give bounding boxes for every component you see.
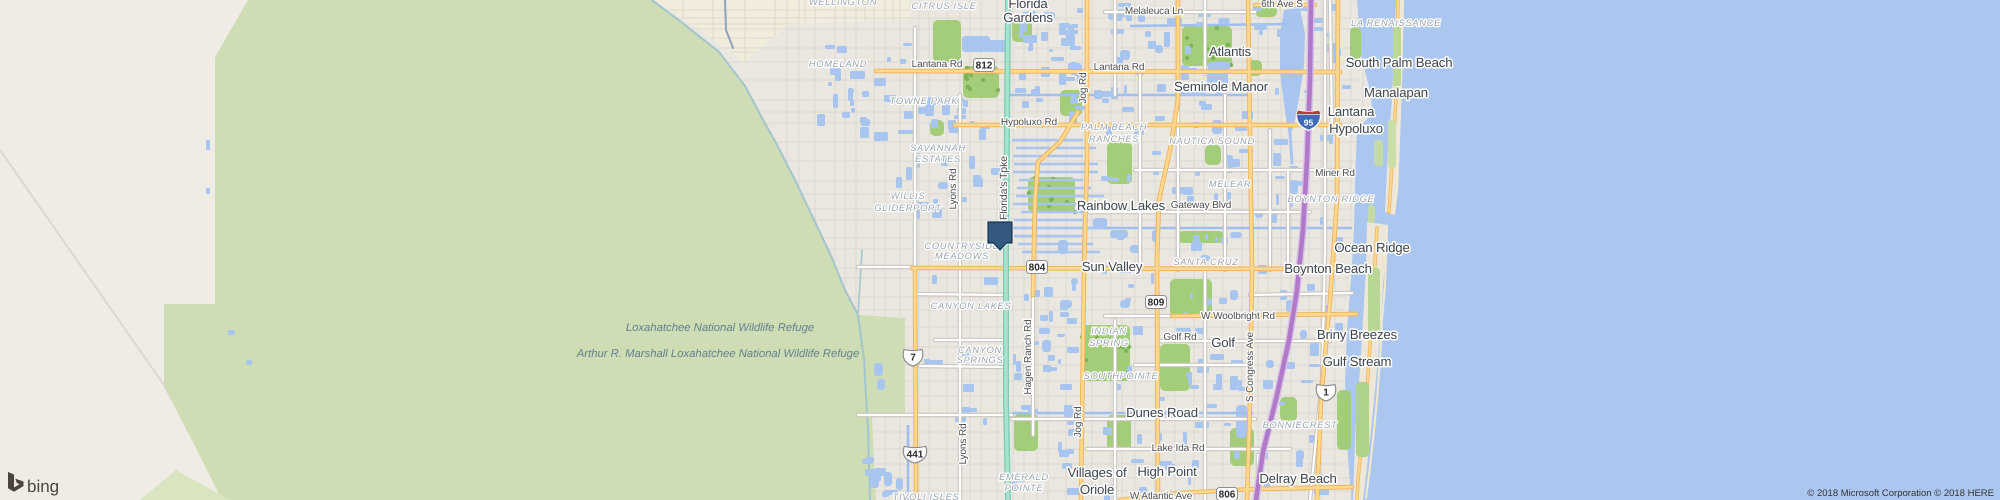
svg-text:Jog Rd: Jog Rd [1073, 406, 1084, 437]
svg-text:Lantana: Lantana [1328, 104, 1375, 119]
svg-text:Lyons Rd: Lyons Rd [948, 168, 959, 209]
svg-text:ESTATES: ESTATES [915, 154, 961, 164]
svg-text:BONNIECREST: BONNIECREST [1263, 420, 1338, 430]
svg-text:CITRUS ISLE: CITRUS ISLE [911, 1, 976, 11]
svg-text:Lyons Rd: Lyons Rd [958, 423, 969, 464]
svg-text:Seminole Manor: Seminole Manor [1174, 79, 1269, 94]
svg-text:W Woolbright Rd: W Woolbright Rd [1201, 311, 1275, 322]
svg-text:WELLINGTON: WELLINGTON [809, 0, 877, 7]
svg-text:NAUTICA SOUND: NAUTICA SOUND [1169, 136, 1255, 146]
svg-text:S Congress Ave: S Congress Ave [1245, 331, 1256, 402]
svg-text:Hagen Ranch Rd: Hagen Ranch Rd [1023, 319, 1034, 394]
svg-text:POINTE: POINTE [1005, 483, 1044, 493]
svg-text:PALM BEACH: PALM BEACH [1081, 122, 1147, 132]
svg-text:Manalapan: Manalapan [1364, 85, 1428, 100]
svg-text:Ocean Ridge: Ocean Ridge [1334, 240, 1409, 255]
svg-text:EMERALD: EMERALD [999, 472, 1049, 482]
svg-text:Gulf Stream: Gulf Stream [1323, 354, 1392, 369]
svg-text:Dunes Road: Dunes Road [1126, 405, 1198, 420]
svg-text:HOMELAND: HOMELAND [809, 59, 867, 69]
svg-text:806: 806 [1219, 490, 1236, 500]
svg-text:812: 812 [976, 61, 993, 72]
svg-text:MEADOWS: MEADOWS [935, 251, 989, 261]
svg-text:804: 804 [1029, 263, 1046, 274]
svg-text:SANTA CRUZ: SANTA CRUZ [1173, 257, 1238, 267]
svg-text:Florida's Tpke: Florida's Tpke [998, 156, 1010, 220]
svg-text:7: 7 [910, 353, 916, 364]
svg-text:INDIAN: INDIAN [1091, 326, 1127, 336]
svg-text:SPRINGS: SPRINGS [957, 355, 1004, 365]
svg-text:Atlantis: Atlantis [1209, 44, 1252, 59]
svg-text:Lantana Rd: Lantana Rd [912, 59, 963, 70]
svg-text:WILLIS: WILLIS [891, 191, 926, 201]
svg-text:© 2018 Microsoft Corporation ©: © 2018 Microsoft Corporation © 2018 HERE [1807, 488, 1994, 499]
svg-text:CANYON LAKES: CANYON LAKES [931, 301, 1012, 311]
svg-text:Gardens: Gardens [1003, 10, 1053, 25]
svg-text:809: 809 [1148, 298, 1165, 309]
svg-text:95: 95 [1304, 118, 1314, 128]
svg-text:South Palm Beach: South Palm Beach [1346, 55, 1453, 70]
svg-text:Lantana Rd: Lantana Rd [1094, 62, 1145, 73]
svg-text:Loxahatchee National Wildlife: Loxahatchee National Wildlife Refuge [626, 322, 814, 334]
svg-text:TOWNE PARK: TOWNE PARK [890, 96, 959, 106]
svg-text:bing: bing [27, 477, 59, 496]
svg-text:Golf Rd: Golf Rd [1163, 332, 1196, 343]
svg-text:Lake Ida Rd: Lake Ida Rd [1152, 443, 1205, 454]
svg-text:SPRING: SPRING [1089, 338, 1129, 348]
svg-text:CANYON: CANYON [958, 345, 1002, 355]
svg-text:1: 1 [1323, 388, 1329, 399]
svg-text:MELEAR: MELEAR [1209, 179, 1251, 189]
svg-text:GLIDERPORT: GLIDERPORT [874, 203, 942, 213]
svg-text:Arthur R. Marshall Loxahatchee: Arthur R. Marshall Loxahatchee National … [576, 348, 859, 360]
svg-text:LA RENAISSANCE: LA RENAISSANCE [1351, 18, 1441, 28]
svg-text:Sun Valley: Sun Valley [1082, 259, 1143, 274]
svg-text:SAVANNAH: SAVANNAH [910, 143, 966, 153]
svg-text:TIVOLI ISLES: TIVOLI ISLES [893, 492, 960, 500]
svg-text:Briny Breezes: Briny Breezes [1317, 327, 1398, 342]
svg-text:Oriole: Oriole [1080, 482, 1114, 497]
svg-text:BOYNTON RIDGE: BOYNTON RIDGE [1288, 194, 1375, 204]
svg-text:Melaleuca Ln: Melaleuca Ln [1125, 6, 1183, 17]
svg-text:6th Ave S: 6th Ave S [1261, 0, 1303, 10]
svg-text:High Point: High Point [1137, 464, 1197, 479]
svg-text:Rainbow Lakes: Rainbow Lakes [1077, 198, 1166, 213]
svg-text:Miner Rd: Miner Rd [1315, 168, 1355, 179]
svg-text:Villages of: Villages of [1068, 465, 1127, 480]
svg-text:Jog Rd: Jog Rd [1078, 72, 1089, 103]
svg-text:Gateway Blvd: Gateway Blvd [1171, 200, 1232, 211]
svg-text:Hypoluxo Rd: Hypoluxo Rd [1001, 117, 1057, 128]
svg-text:SOUTHPOINTE: SOUTHPOINTE [1084, 371, 1159, 381]
svg-text:Delray Beach: Delray Beach [1259, 471, 1336, 486]
svg-text:RANCHES: RANCHES [1089, 134, 1139, 144]
svg-text:441: 441 [907, 450, 924, 461]
svg-text:Golf: Golf [1211, 335, 1235, 350]
svg-text:W Atlantic Ave: W Atlantic Ave [1130, 491, 1193, 500]
svg-text:Hypoluxo: Hypoluxo [1329, 121, 1383, 136]
svg-text:Boynton Beach: Boynton Beach [1284, 261, 1372, 276]
